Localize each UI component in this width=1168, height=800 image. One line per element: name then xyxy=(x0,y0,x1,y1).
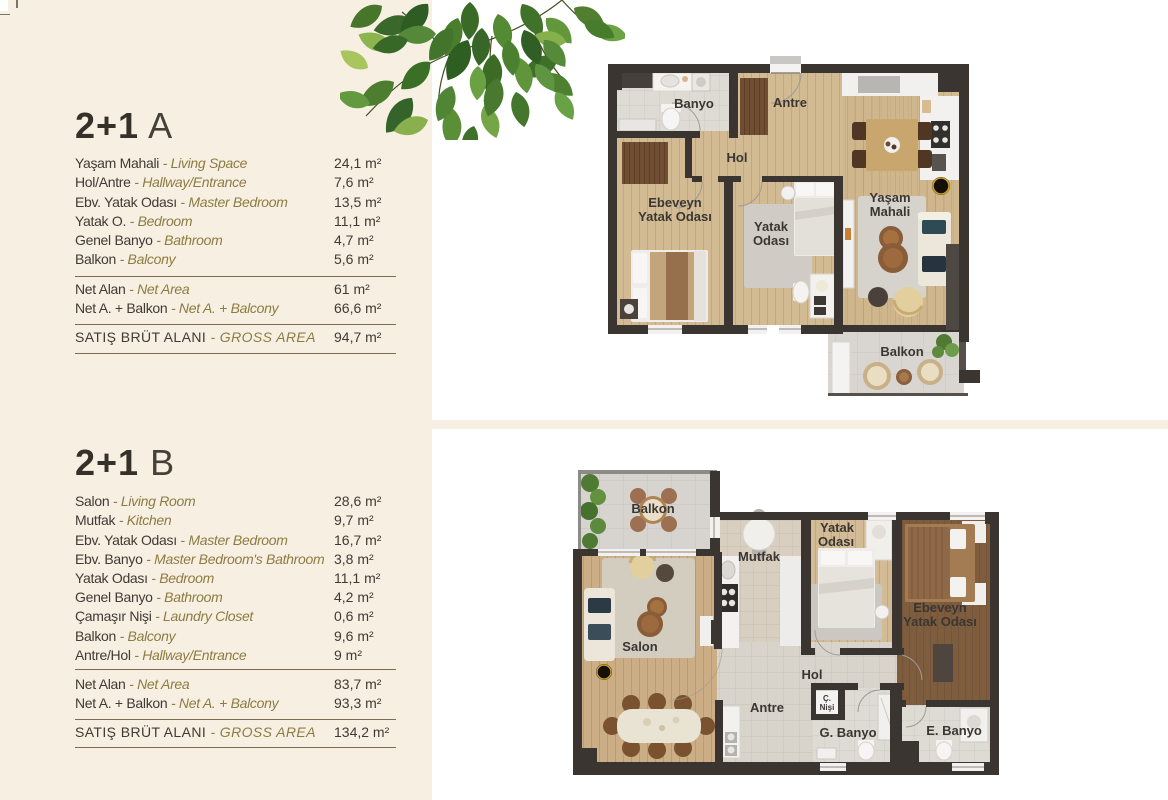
svg-text:Mutfak: Mutfak xyxy=(738,549,781,564)
svg-text:Yaşam: Yaşam xyxy=(869,190,910,205)
svg-text:Yatak: Yatak xyxy=(820,520,855,535)
svg-text:Balkon: Balkon xyxy=(880,344,923,359)
svg-text:Odası: Odası xyxy=(753,233,789,248)
svg-text:Odası: Odası xyxy=(818,534,854,549)
svg-text:Hol: Hol xyxy=(802,667,823,682)
svg-text:Antre: Antre xyxy=(773,95,807,110)
svg-text:Ç.: Ç. xyxy=(823,694,831,703)
svg-text:Mahali: Mahali xyxy=(870,204,910,219)
svg-text:Balkon: Balkon xyxy=(631,501,674,516)
svg-text:Salon: Salon xyxy=(622,639,657,654)
svg-text:Yatak Odası: Yatak Odası xyxy=(903,614,977,629)
svg-text:Yatak: Yatak xyxy=(754,219,789,234)
svg-text:Banyo: Banyo xyxy=(674,96,714,111)
svg-text:Antre: Antre xyxy=(750,700,784,715)
svg-text:Nişi: Nişi xyxy=(820,703,835,712)
svg-text:E. Banyo: E. Banyo xyxy=(926,723,982,738)
svg-text:G. Banyo: G. Banyo xyxy=(819,725,876,740)
svg-text:Ebeveyn: Ebeveyn xyxy=(648,195,702,210)
svg-text:Yatak Odası: Yatak Odası xyxy=(638,209,712,224)
svg-text:Hol: Hol xyxy=(727,150,748,165)
svg-text:Ebeveyn: Ebeveyn xyxy=(913,600,967,615)
